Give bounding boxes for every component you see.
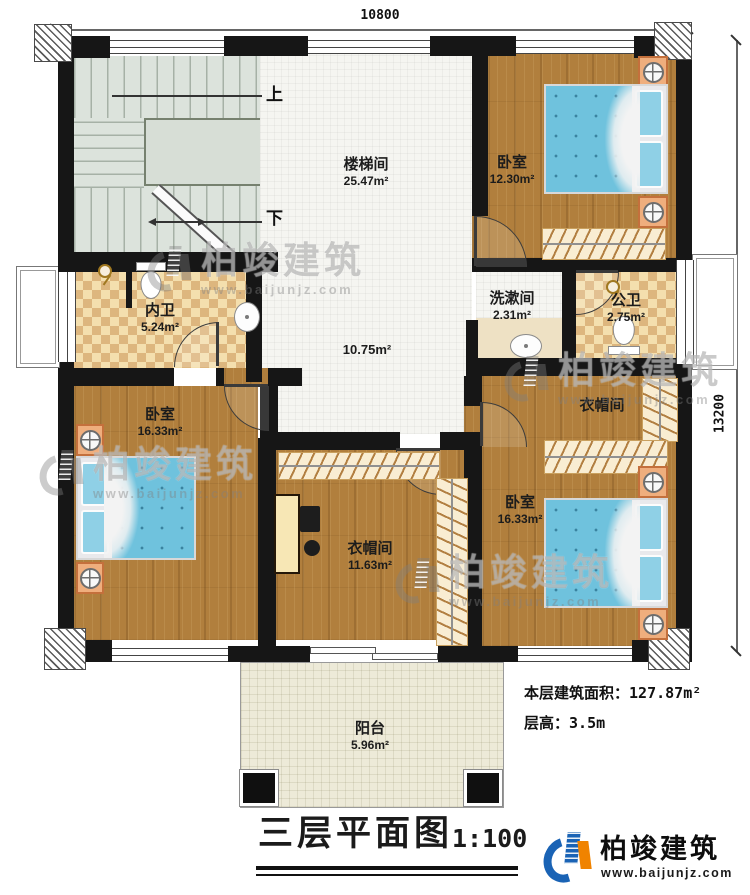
bed-blanket-fold	[596, 86, 640, 192]
door-leaf	[216, 322, 219, 366]
stair-side-flight	[74, 118, 144, 188]
note-floor-area: 本层建筑面积：127.87m²	[524, 682, 701, 703]
wall-segment	[260, 432, 400, 450]
wall-segment	[472, 54, 488, 216]
wall-segment	[126, 262, 132, 308]
wall-segment	[268, 368, 302, 386]
room-label-stair-hall: 楼梯间 25.47m²	[343, 156, 388, 188]
stair-down-label: 下	[266, 210, 283, 227]
stair-landing	[144, 118, 264, 186]
bay-window	[692, 254, 738, 370]
plant-pot-icon	[80, 430, 101, 451]
wall-segment	[58, 36, 74, 272]
plant-pot-icon	[643, 614, 664, 635]
room-label-bedroom-top-right: 卧室 12.30m²	[490, 154, 535, 186]
title-underline	[256, 866, 518, 870]
balcony-column	[464, 770, 502, 806]
balcony-column	[240, 770, 278, 806]
room-label-washroom: 洗漱间 2.31m²	[489, 290, 534, 322]
wall-segment	[430, 36, 516, 56]
window	[110, 40, 224, 54]
plant-pot-icon	[643, 472, 664, 493]
window	[518, 648, 632, 662]
room-label-inner-bathroom: 内卫 5.24m²	[141, 302, 179, 334]
wall-segment	[466, 320, 478, 360]
door-leaf	[474, 216, 477, 266]
toilet-icon	[136, 262, 166, 300]
room-label-public-bathroom: 公卫 2.75m²	[607, 292, 645, 324]
nightstand	[638, 196, 668, 228]
door-leaf	[576, 270, 618, 273]
bed	[544, 84, 668, 194]
bed	[544, 498, 668, 608]
nightstand	[76, 562, 104, 594]
wardrobe-rack	[542, 228, 666, 260]
room-label-bedroom-left: 卧室 16.33m²	[138, 406, 183, 438]
bed	[76, 456, 196, 560]
dressing-mirror	[300, 506, 320, 532]
window	[58, 272, 76, 362]
nightstand	[76, 424, 104, 456]
dimension-label-right: 13200	[713, 384, 728, 444]
brand-url: www.baijunjz.com	[601, 866, 733, 880]
room-label-hall-area: 10.75m²	[343, 342, 391, 358]
wall-segment	[216, 368, 224, 386]
window	[112, 648, 228, 662]
wall-segment	[676, 36, 692, 260]
window	[516, 40, 634, 54]
plant-pot-icon	[643, 62, 664, 83]
brand-name: 柏竣建筑	[600, 836, 720, 863]
wardrobe-rack	[436, 478, 468, 646]
plan-title: 三层平面图	[258, 816, 453, 851]
wall-segment	[562, 272, 576, 358]
wall-segment	[58, 362, 74, 648]
door-leaf	[396, 448, 440, 451]
room-label-bedroom-bottom-right: 卧室 16.33m²	[498, 494, 543, 526]
wardrobe-rack	[278, 452, 440, 480]
corner-column-marker	[34, 24, 72, 62]
wall-segment	[58, 252, 278, 272]
nightstand	[638, 466, 668, 498]
plan-scale: 1:100	[452, 824, 527, 853]
brand-logo-icon	[544, 830, 594, 884]
nightstand	[638, 608, 668, 640]
wall-segment	[676, 364, 692, 648]
door-leaf	[224, 384, 268, 387]
door-leaf	[480, 402, 483, 446]
wall-segment	[58, 368, 174, 386]
note-floor-height: 层高：3.5m	[524, 712, 605, 733]
plant-pot-icon	[80, 568, 101, 589]
corner-column-marker	[44, 628, 86, 670]
sliding-door	[372, 653, 438, 660]
window	[308, 40, 430, 54]
room-label-balcony: 阳台 5.96m²	[351, 720, 389, 752]
wardrobe-rack	[642, 378, 678, 442]
floor-plan: 10800 13200	[0, 0, 750, 895]
plant-pot-icon	[643, 202, 664, 223]
wall-segment	[224, 36, 308, 56]
stair-up-line	[112, 95, 262, 97]
stair-arrow-icon	[198, 218, 206, 226]
sink-icon	[234, 302, 260, 332]
wall-segment	[438, 646, 518, 662]
room-label-cloakroom-bottom: 衣帽间 11.63m²	[347, 540, 392, 572]
corner-column-marker	[654, 22, 692, 60]
bed-blanket-fold	[596, 500, 640, 606]
stair-arrow-icon	[148, 218, 156, 226]
wall-segment	[228, 646, 310, 662]
title-underline	[256, 874, 518, 876]
bed-blanket-fold	[104, 458, 148, 558]
sink-icon	[510, 334, 542, 358]
wall-segment	[466, 358, 676, 376]
bay-window	[16, 266, 60, 368]
dressing-table	[274, 494, 300, 574]
dimension-line-top	[55, 29, 688, 31]
window	[676, 260, 694, 364]
stair-down-line	[152, 221, 262, 223]
stair-up-label: 上	[266, 86, 283, 103]
sliding-door	[310, 647, 376, 654]
dressing-stool	[304, 540, 320, 556]
dimension-label-top: 10800	[345, 8, 415, 23]
room-label-cloakroom-right: 衣帽间	[579, 397, 624, 415]
